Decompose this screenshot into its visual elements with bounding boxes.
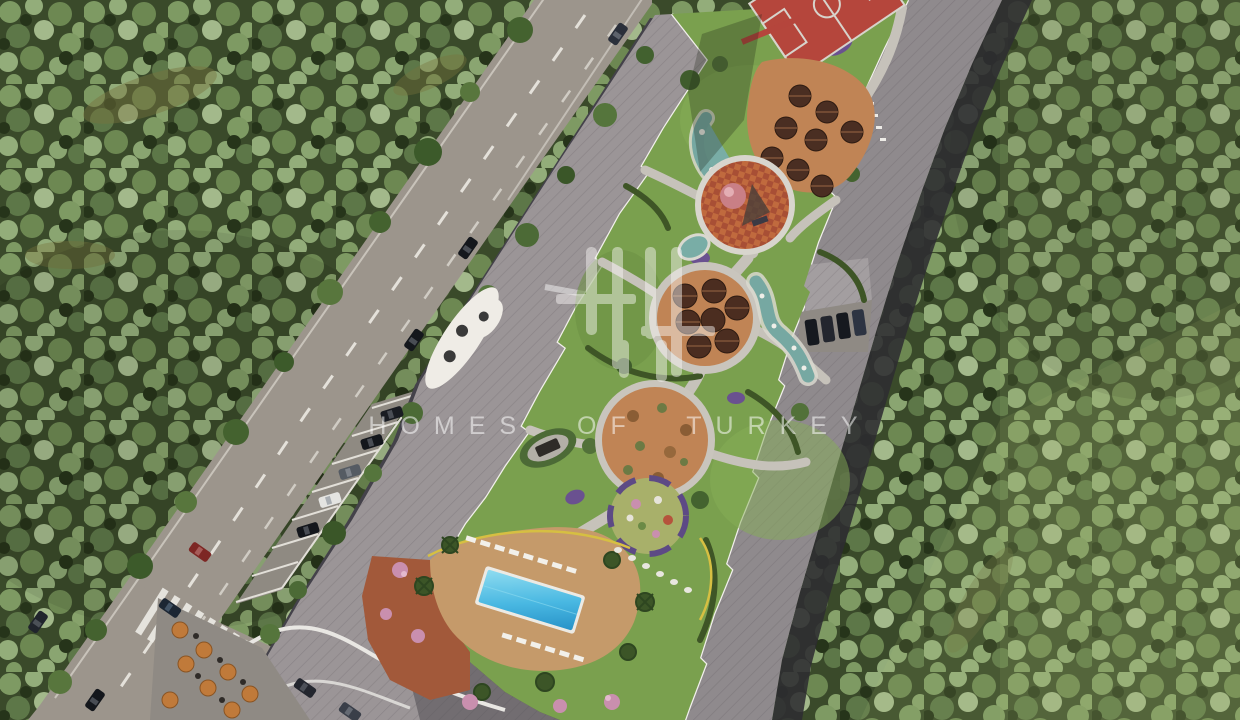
aerial-render: HOMES OF TURKEY — [0, 0, 1240, 720]
site-plan-canvas: HOMES OF TURKEY — [0, 0, 1240, 720]
flower-garden-circle — [610, 478, 686, 554]
watermark-text: HOMES OF TURKEY — [368, 412, 871, 440]
annex-parking — [798, 258, 872, 352]
